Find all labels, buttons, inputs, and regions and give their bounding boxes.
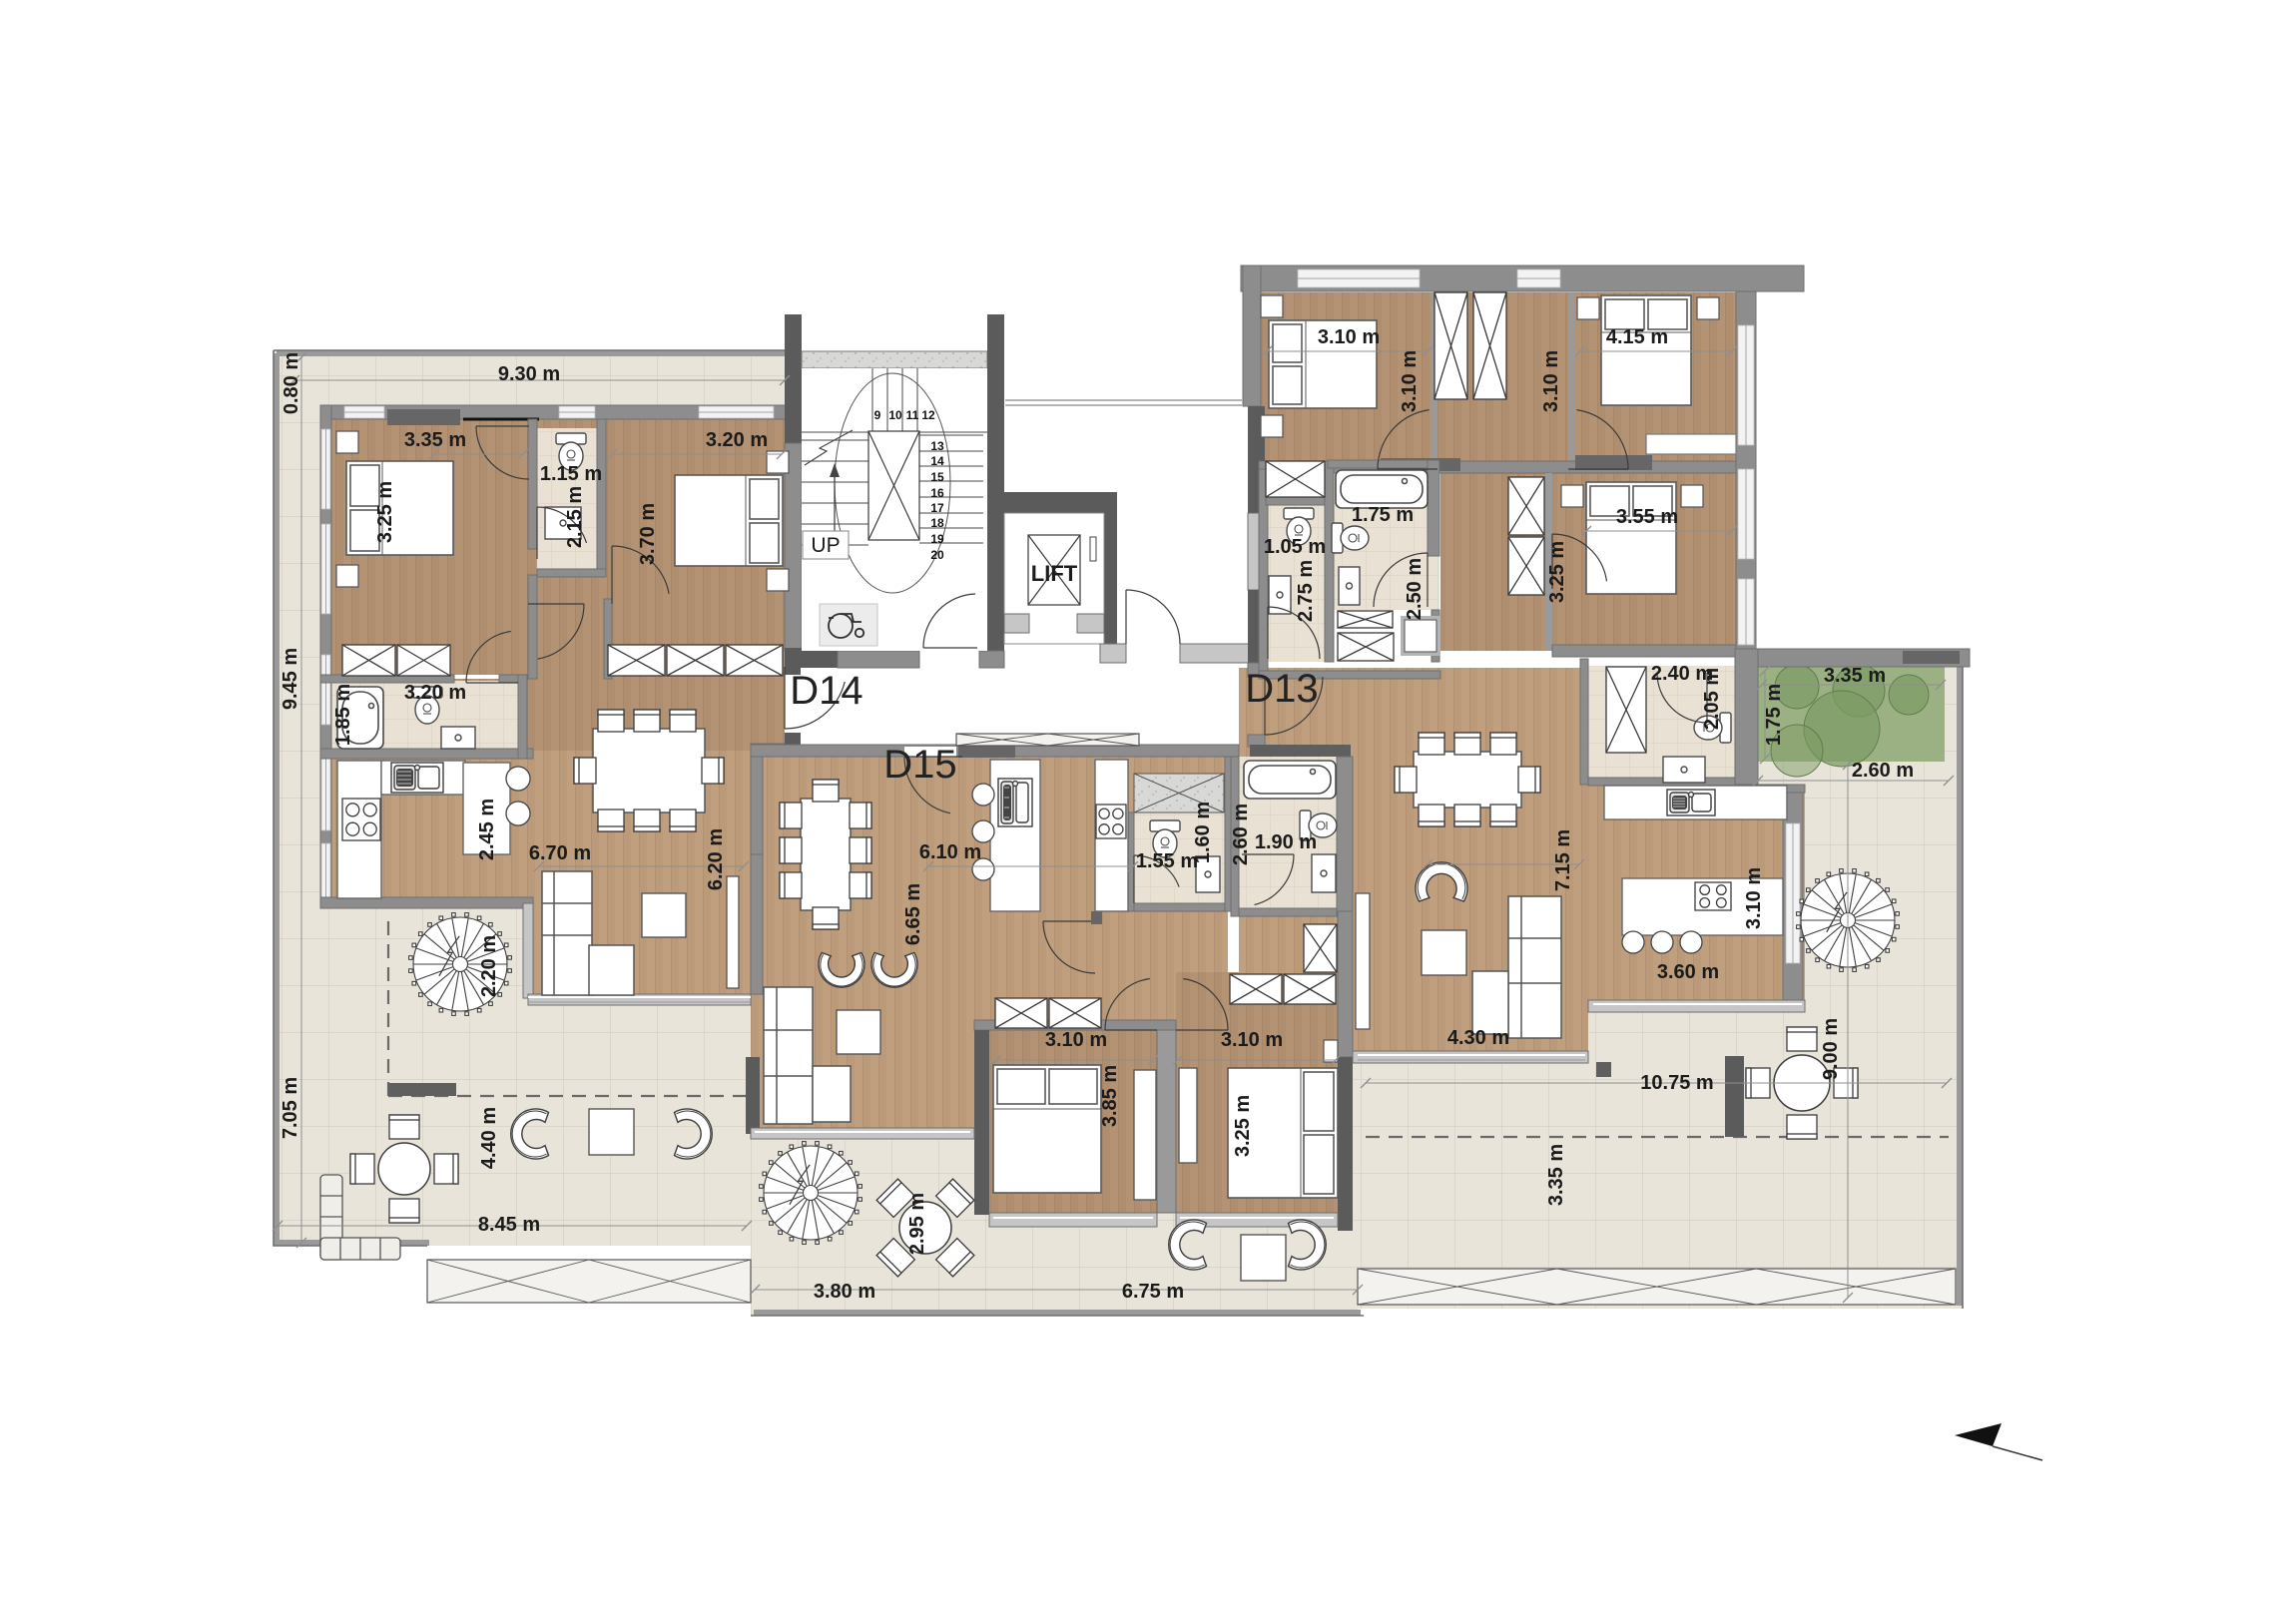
svg-text:4.40 m: 4.40 m	[478, 1107, 500, 1169]
svg-text:19: 19	[930, 532, 944, 546]
svg-text:6.20 m: 6.20 m	[705, 828, 727, 890]
svg-text:3.35 m: 3.35 m	[1824, 665, 1886, 687]
svg-text:7.05 m: 7.05 m	[280, 1077, 301, 1139]
svg-text:9.00 m: 9.00 m	[1820, 1018, 1842, 1080]
svg-text:3.10 m: 3.10 m	[1743, 867, 1765, 929]
svg-text:1.15 m: 1.15 m	[540, 463, 602, 485]
svg-text:10: 10	[888, 408, 902, 422]
svg-text:6.65 m: 6.65 m	[902, 883, 924, 945]
svg-text:2.95 m: 2.95 m	[906, 1193, 928, 1255]
svg-text:11: 11	[906, 408, 919, 422]
svg-text:2.60 m: 2.60 m	[1852, 760, 1914, 782]
svg-text:12: 12	[921, 408, 935, 422]
svg-text:3.25 m: 3.25 m	[374, 481, 396, 543]
svg-text:6.70 m: 6.70 m	[529, 842, 591, 864]
svg-text:2.05 m: 2.05 m	[1701, 668, 1723, 730]
svg-text:13: 13	[930, 439, 944, 453]
svg-text:1.75 m: 1.75 m	[1763, 684, 1785, 746]
svg-text:18: 18	[930, 516, 944, 530]
svg-text:2.75 m: 2.75 m	[1295, 560, 1317, 622]
svg-text:3.20 m: 3.20 m	[706, 429, 768, 451]
svg-text:17: 17	[930, 501, 944, 515]
svg-text:9: 9	[874, 408, 881, 422]
svg-text:D14: D14	[790, 669, 862, 713]
svg-text:3.10 m: 3.10 m	[1399, 350, 1421, 412]
svg-text:3.10 m: 3.10 m	[1318, 326, 1380, 348]
svg-text:16: 16	[930, 486, 944, 500]
svg-text:UP: UP	[811, 534, 840, 557]
svg-text:1.90 m: 1.90 m	[1255, 831, 1317, 853]
svg-text:3.10 m: 3.10 m	[1221, 1029, 1283, 1051]
svg-text:6.75 m: 6.75 m	[1122, 1281, 1184, 1303]
svg-text:3.70 m: 3.70 m	[637, 503, 659, 565]
svg-text:1.75 m: 1.75 m	[1352, 504, 1414, 526]
svg-text:2.45 m: 2.45 m	[476, 799, 498, 860]
svg-text:3.80 m: 3.80 m	[814, 1281, 875, 1303]
svg-text:1.85 m: 1.85 m	[332, 684, 354, 746]
svg-text:10.75 m: 10.75 m	[1640, 1072, 1713, 1094]
svg-text:3.25 m: 3.25 m	[1546, 541, 1568, 603]
svg-text:D13: D13	[1245, 667, 1318, 711]
svg-text:20: 20	[930, 548, 944, 562]
svg-text:15: 15	[930, 470, 944, 484]
svg-text:4.30 m: 4.30 m	[1447, 1027, 1509, 1049]
svg-text:3.10 m: 3.10 m	[1045, 1029, 1107, 1051]
svg-text:D15: D15	[883, 743, 956, 787]
svg-text:0.80 m: 0.80 m	[281, 352, 302, 414]
svg-text:2.60 m: 2.60 m	[1230, 804, 1252, 865]
svg-text:3.35 m: 3.35 m	[1545, 1144, 1567, 1206]
svg-text:7.15 m: 7.15 m	[1552, 829, 1574, 891]
svg-text:8.45 m: 8.45 m	[478, 1214, 540, 1236]
svg-text:3.20 m: 3.20 m	[404, 682, 466, 704]
svg-text:3.85 m: 3.85 m	[1099, 1065, 1121, 1127]
svg-text:1.55 m: 1.55 m	[1136, 850, 1198, 872]
svg-text:4.15 m: 4.15 m	[1606, 326, 1668, 348]
svg-text:3.10 m: 3.10 m	[1540, 350, 1562, 412]
svg-text:3.35 m: 3.35 m	[404, 429, 466, 451]
svg-text:1.60 m: 1.60 m	[1192, 802, 1214, 863]
svg-text:2.15 m: 2.15 m	[564, 486, 586, 548]
svg-text:2.20 m: 2.20 m	[478, 935, 500, 997]
svg-text:3.55 m: 3.55 m	[1616, 506, 1678, 528]
svg-text:9.30 m: 9.30 m	[498, 363, 560, 385]
svg-text:3.25 m: 3.25 m	[1232, 1095, 1254, 1157]
svg-text:3.60 m: 3.60 m	[1657, 961, 1719, 983]
svg-text:1.05 m: 1.05 m	[1264, 536, 1326, 558]
svg-text:6.10 m: 6.10 m	[919, 841, 981, 863]
svg-text:2.50 m: 2.50 m	[1404, 558, 1426, 620]
svg-text:LIFT: LIFT	[1031, 561, 1078, 586]
svg-text:14: 14	[930, 454, 944, 468]
svg-text:9.45 m: 9.45 m	[280, 648, 301, 710]
